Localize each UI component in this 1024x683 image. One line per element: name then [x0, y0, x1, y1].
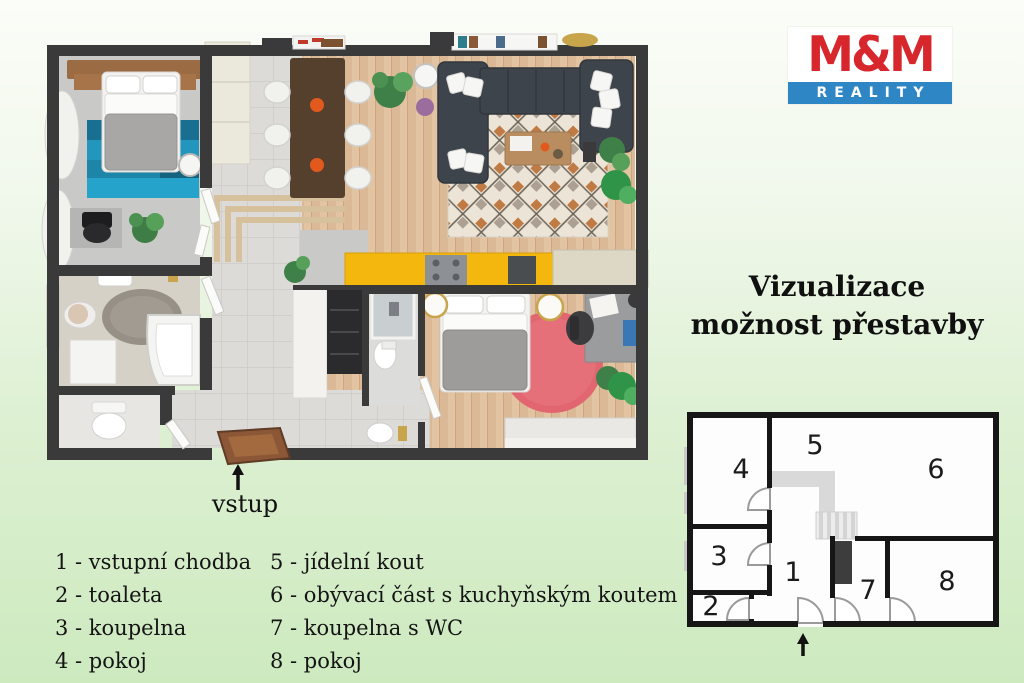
mini-room-8: 8 — [938, 566, 955, 597]
round-side-table — [414, 64, 438, 88]
legend-item-1: 1 - vstupní chodba — [55, 546, 251, 579]
coffee-table — [505, 132, 571, 165]
logo-text-reality: REALITY — [788, 82, 952, 104]
black-shelf-unit — [327, 288, 362, 374]
mm-reality-logo: M&M REALITY — [788, 27, 952, 104]
kitchen-appliance — [508, 256, 536, 284]
gold-decor — [562, 33, 598, 47]
entrance-label: vstup — [211, 490, 278, 518]
corner-bathtub — [147, 315, 200, 385]
wc-room — [92, 402, 126, 439]
page-title: Vizualizace možnost přestavby — [672, 268, 1002, 344]
flowers-orange-2 — [310, 158, 324, 172]
title-line-2: možnost přestavby — [672, 306, 1002, 344]
title-line-1: Vizualizace — [672, 268, 1002, 306]
flowers-purple — [416, 98, 434, 116]
kitchen-island — [553, 250, 648, 287]
entrance: vstup — [211, 428, 290, 518]
logo-text-mm: M&M — [788, 26, 952, 84]
mini-room-4: 4 — [732, 454, 749, 485]
hall-basin — [367, 423, 393, 443]
mini-room-7: 7 — [859, 575, 876, 606]
laptop — [623, 320, 637, 346]
bed-double-br — [440, 292, 530, 392]
legend-item-5: 5 - jídelní kout — [270, 546, 677, 579]
toilet-wc — [92, 413, 126, 439]
pendant-light-2 — [537, 294, 563, 320]
legend-item-7: 7 - koupelna s WC — [270, 612, 677, 645]
legend-item-6: 6 - obývací část s kuchyňským koutem — [270, 579, 677, 612]
legend-column-1: 1 - vstupní chodba 2 - toaleta 3 - koupe… — [55, 546, 251, 678]
legend-item-2: 2 - toaleta — [55, 579, 251, 612]
floor-plan-2d-schematic: 1 2 3 4 5 6 7 8 — [683, 408, 1005, 663]
book-on-table — [510, 136, 532, 151]
pendant-light-1 — [423, 293, 447, 317]
dining-table — [290, 58, 345, 198]
mini-room-3: 3 — [710, 541, 727, 572]
floor-plan-3d: vstup — [40, 30, 670, 520]
toilet-bathroom — [64, 302, 96, 328]
legend-item-4: 4 - pokoj — [55, 645, 251, 678]
bench-white — [505, 418, 636, 448]
mini-room-1: 1 — [784, 557, 801, 588]
mini-room-5: 5 — [806, 430, 823, 461]
mini-shower-block — [835, 541, 852, 584]
bed-double-tl — [102, 72, 180, 172]
legend-item-8: 8 - pokoj — [270, 645, 677, 678]
legend-item-3: 3 - koupelna — [55, 612, 251, 645]
stove — [425, 255, 467, 285]
mini-entrance-arrow-icon — [797, 633, 809, 656]
mini-room-2: 2 — [702, 591, 719, 622]
flowers-orange-1 — [310, 98, 324, 112]
living-room — [438, 60, 637, 237]
nightstand-left — [74, 74, 102, 90]
washing-machine — [70, 340, 116, 384]
desk-tl — [70, 208, 122, 248]
round-mirror-table — [179, 154, 201, 176]
entrance-arrow-icon — [232, 464, 244, 490]
hall-towel — [398, 426, 407, 441]
mini-room-6: 6 — [927, 454, 944, 485]
white-cabinet — [293, 288, 327, 398]
legend-column-2: 5 - jídelní kout 6 - obývací část s kuch… — [270, 546, 677, 678]
